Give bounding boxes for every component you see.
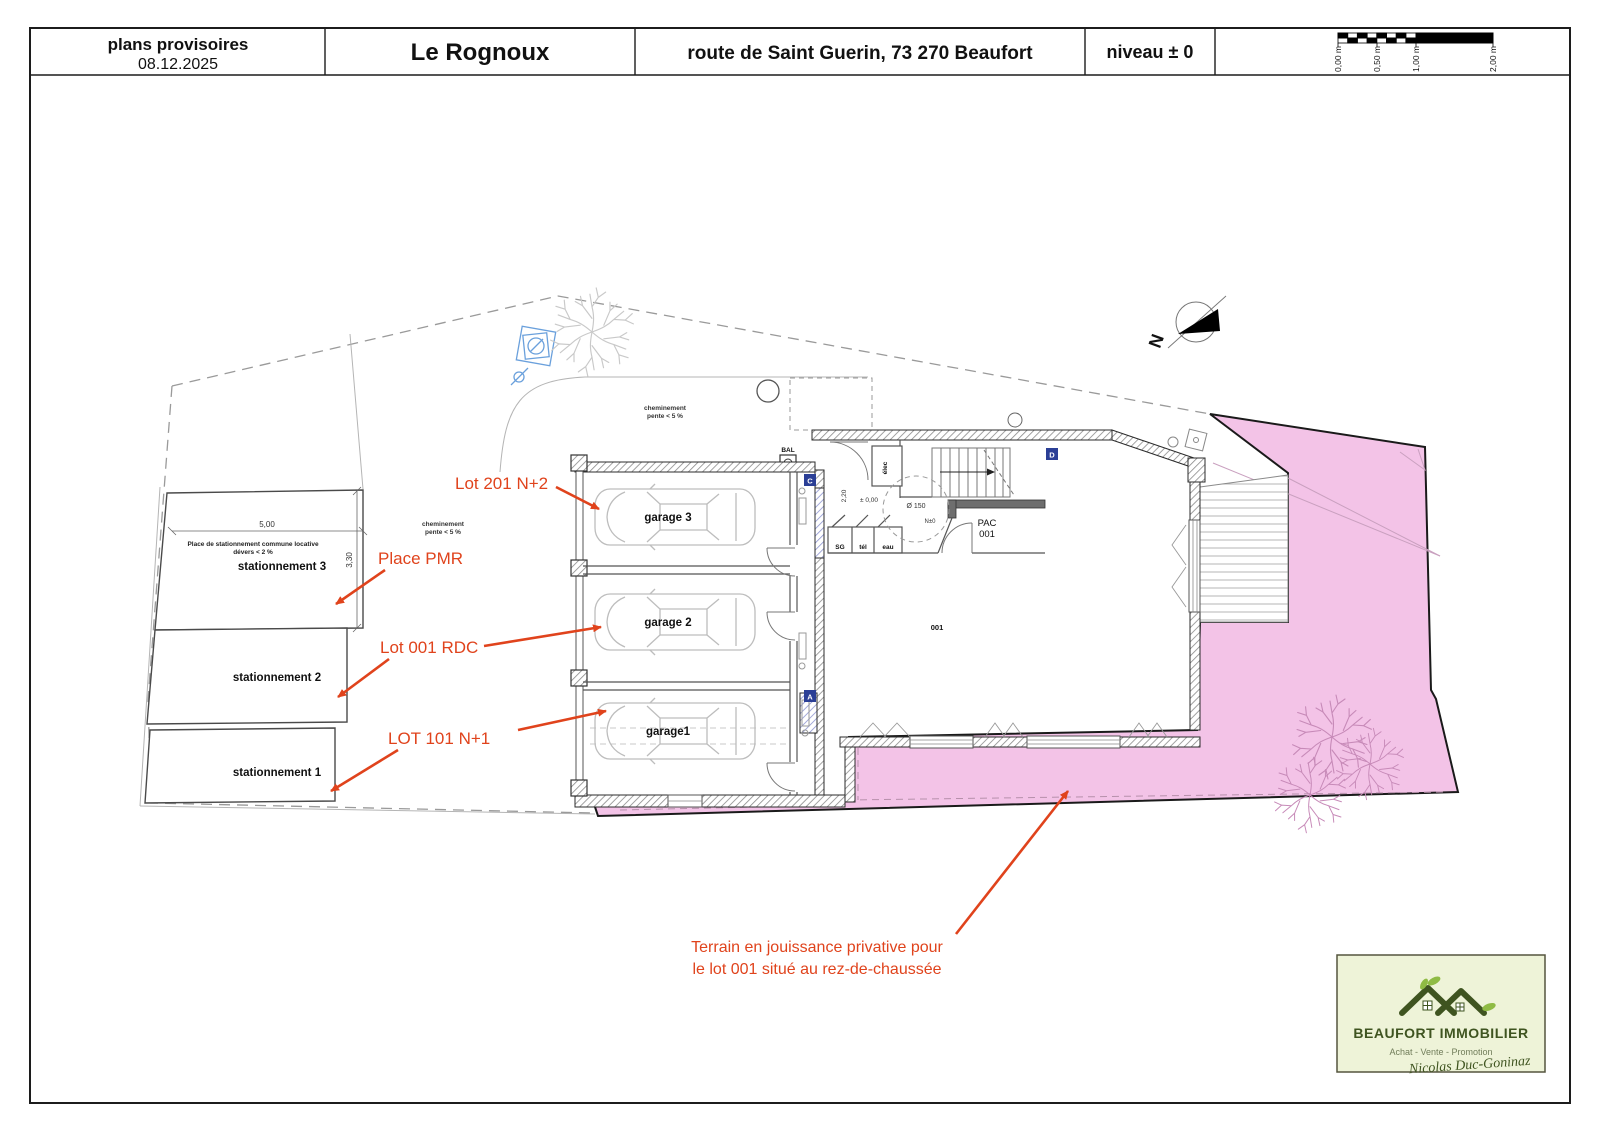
staircase bbox=[932, 448, 1014, 497]
plan-canvas: plans provisoires 08.12.2025 Le Rognoux … bbox=[0, 0, 1600, 1131]
path-note-2b: pente < 5 % bbox=[647, 413, 683, 420]
annotation-lot201: Lot 201 N+2 bbox=[455, 474, 548, 493]
agency-logo: BEAUFORT IMMOBILIER Achat - Vente - Prom… bbox=[1337, 955, 1545, 1077]
tel-label: tél bbox=[859, 544, 867, 551]
svg-text:BAL: BAL bbox=[781, 447, 794, 454]
parking-note-2: dévers < 2 % bbox=[233, 549, 273, 556]
annotation-terrain-1: Terrain en jouissance privative pour bbox=[691, 939, 943, 956]
path-note-2a: cheminement bbox=[644, 405, 687, 412]
room-001-label: 001 bbox=[931, 623, 944, 632]
annotation-terrain-2: le lot 001 situé au rez-de-chaussée bbox=[692, 961, 941, 978]
turn-circle-label: Ø 150 bbox=[906, 503, 925, 510]
svg-text:D: D bbox=[1049, 451, 1055, 460]
parking-area bbox=[145, 490, 363, 803]
logo-tagline: Achat - Vente - Promotion bbox=[1389, 1047, 1492, 1057]
parking-space-1-label: stationnement 1 bbox=[233, 767, 322, 779]
garage3-label: garage 3 bbox=[644, 512, 691, 524]
scale-tick-3: 2,00 m bbox=[1488, 46, 1498, 72]
pac-label-2: 001 bbox=[979, 529, 995, 540]
pac-label-1: PAC bbox=[978, 518, 997, 529]
scale-tick-2: 1,00 m bbox=[1411, 46, 1421, 72]
path-note-1a: cheminement bbox=[422, 521, 465, 528]
level-label: niveau ± 0 bbox=[1107, 42, 1194, 62]
parking-note-1: Place de stationnement commune locative bbox=[187, 541, 319, 548]
scale-tick-1: 0,50 m bbox=[1372, 46, 1382, 72]
sg-label: SG bbox=[835, 544, 844, 551]
terrace-deck bbox=[1200, 475, 1288, 622]
small-circle-top-wall bbox=[1008, 413, 1022, 427]
parking-space-3 bbox=[155, 490, 363, 630]
doc-date: 08.12.2025 bbox=[138, 56, 218, 73]
floor-plan-sheet: plans provisoires 08.12.2025 Le Rognoux … bbox=[0, 0, 1600, 1131]
eau-label: eau bbox=[882, 544, 893, 551]
project-address: route de Saint Guerin, 73 270 Beaufort bbox=[687, 43, 1033, 64]
garage-bottom-door bbox=[668, 795, 702, 807]
n-zero-label: N±0 bbox=[925, 519, 937, 525]
parking-dim-width: 5,00 bbox=[259, 520, 275, 529]
dim-220: 2,20 bbox=[841, 489, 848, 502]
elec-label: élec bbox=[882, 461, 889, 474]
parking-space-2-label: stationnement 2 bbox=[233, 672, 321, 684]
svg-text:C: C bbox=[807, 477, 813, 486]
garage2-label: garage 2 bbox=[644, 617, 691, 629]
path-note-1b: pente < 5 % bbox=[425, 529, 461, 536]
annotation-lot101: LOT 101 N+1 bbox=[388, 729, 490, 748]
annotation-place-pmr: Place PMR bbox=[378, 549, 463, 568]
logo-company: BEAUFORT IMMOBILIER bbox=[1353, 1025, 1528, 1041]
annotation-lot001: Lot 001 RDC bbox=[380, 638, 478, 657]
scale-tick-0: 0,00 m bbox=[1333, 46, 1343, 72]
parking-dim-depth: 3,30 bbox=[345, 552, 354, 568]
parking-space-3-label: stationnement 3 bbox=[238, 561, 326, 573]
project-title: Le Rognoux bbox=[411, 39, 550, 66]
garage1-label: garage1 bbox=[646, 726, 691, 738]
level-zero-label: ± 0,00 bbox=[860, 497, 878, 504]
svg-text:A: A bbox=[807, 693, 813, 702]
parking-space-1 bbox=[145, 728, 335, 803]
doc-type: plans provisoires bbox=[108, 35, 249, 54]
